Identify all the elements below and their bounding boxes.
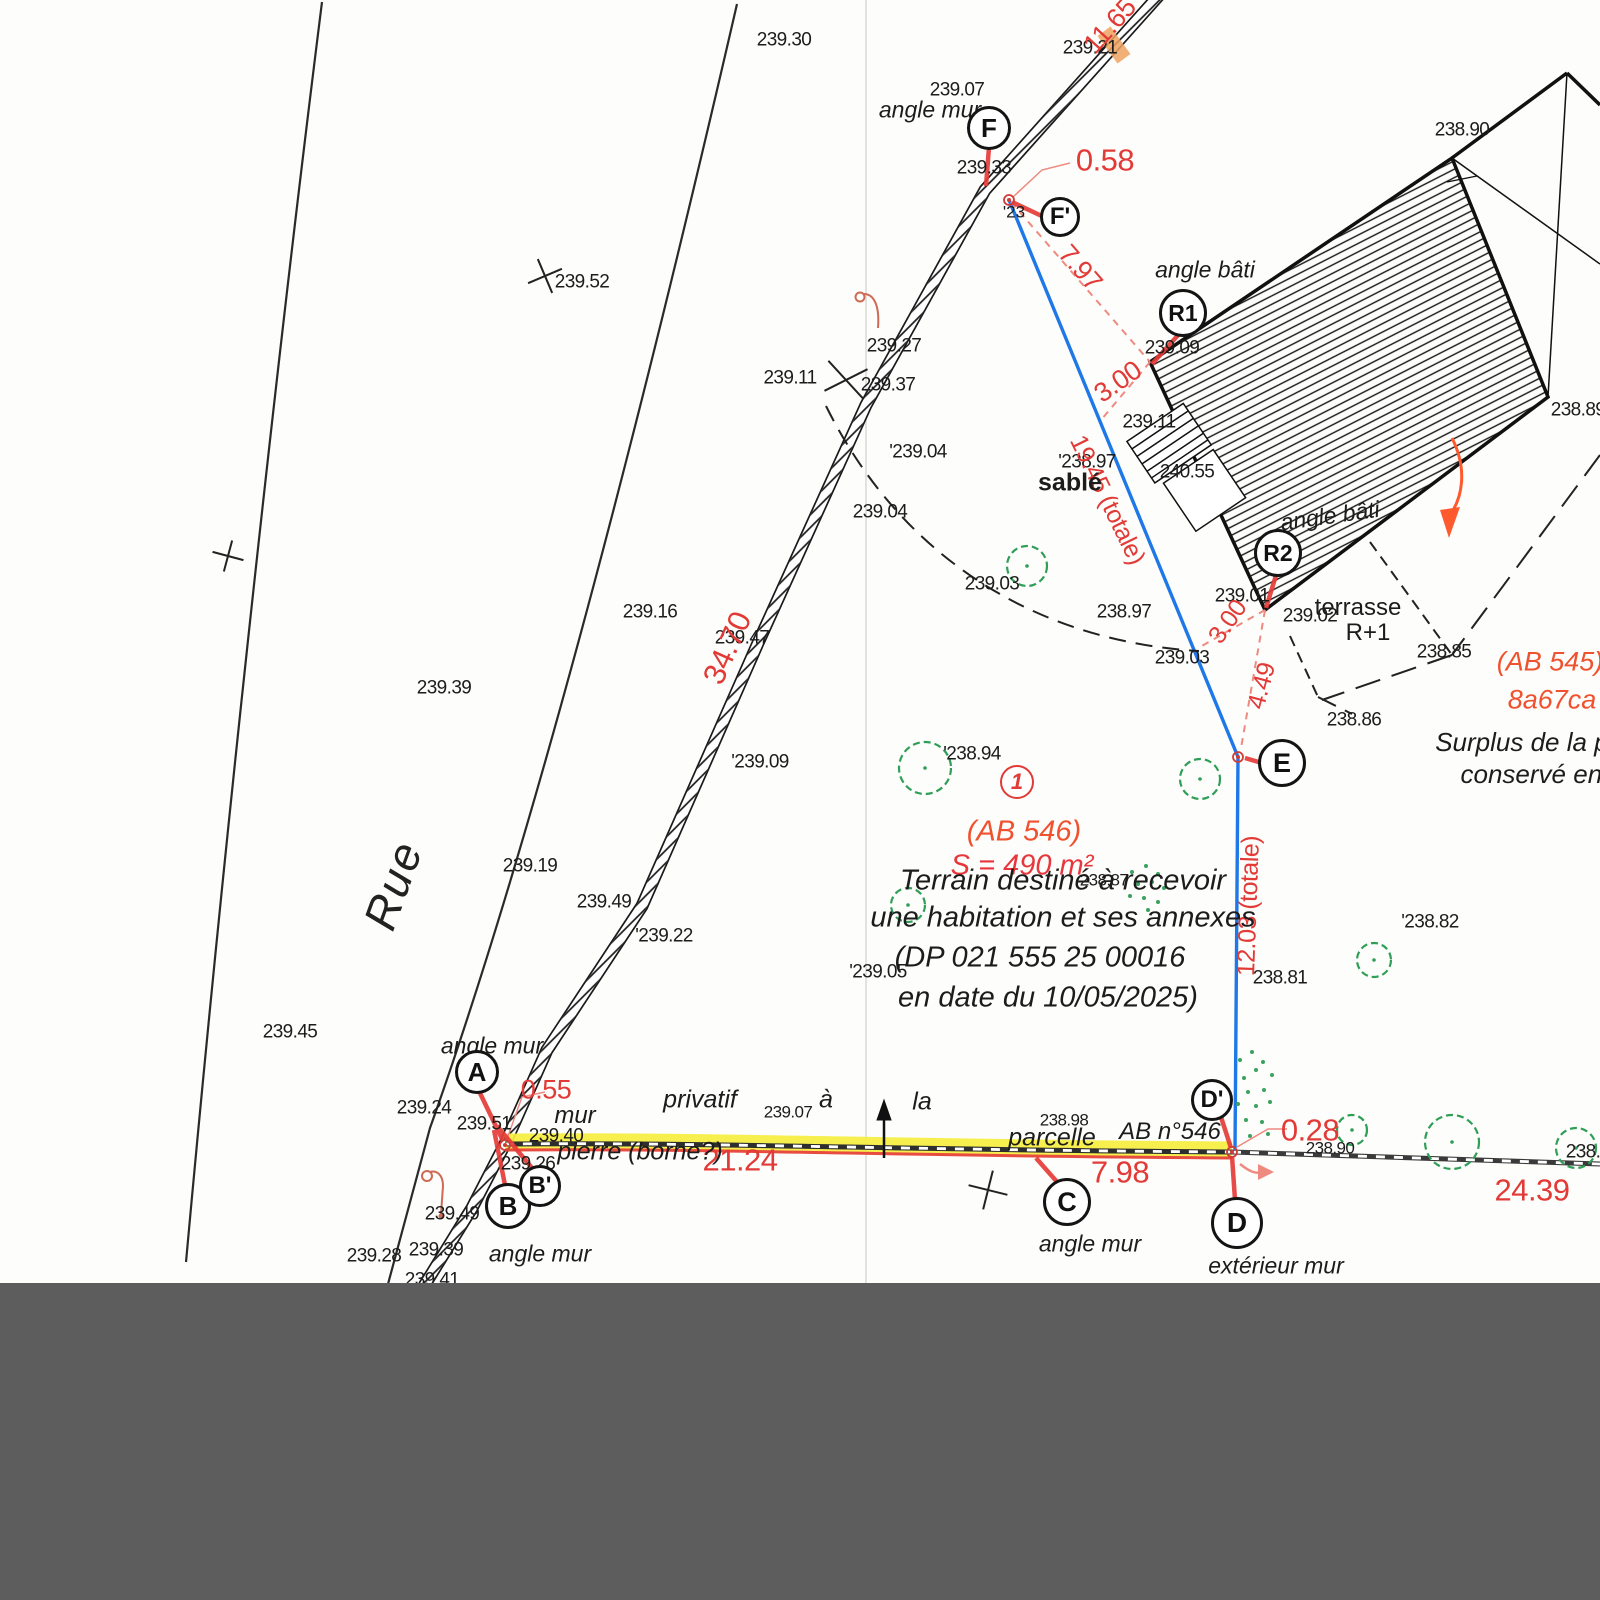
parcel-surface-ab545: 8a67ca — [1508, 687, 1597, 714]
elevation-label: 239.49 — [425, 1205, 480, 1224]
terrain-note-line1: Terrain destiné à recevoir — [900, 867, 1226, 896]
survey-point-D-prime: D' — [1191, 1079, 1233, 1121]
elevation-label: 238.8 — [1566, 1143, 1600, 1162]
cadastral-plan: Rue 239.30 239.21 239.07 239.33 239.52 2… — [0, 0, 1600, 1283]
elevation-label: 239.37 — [861, 376, 916, 395]
elevation-label: 238.97 — [1097, 603, 1152, 622]
elevation-label: 239.33 — [957, 159, 1012, 178]
elevation-label: 239.09 — [1145, 339, 1200, 358]
survey-point-E: E — [1258, 739, 1306, 787]
zone-number-1: 1 — [1000, 765, 1034, 799]
building-hatched — [1150, 73, 1600, 610]
survey-point-B-prime: B' — [519, 1165, 561, 1207]
elevation-label: 239.03 — [965, 575, 1020, 594]
elevation-label: '238.94 — [943, 745, 1001, 764]
elevation-label: 239.49 — [577, 893, 632, 912]
feature-label-terrasse: terrasse — [1315, 596, 1402, 620]
survey-point-F-prime: F' — [1040, 197, 1080, 237]
elevation-label: 239.39 — [417, 679, 472, 698]
elevation-label: 239.03 — [1155, 649, 1210, 668]
flow-arrow-icon — [1240, 1164, 1274, 1180]
elevation-label: 239.04 — [853, 503, 908, 522]
elevation-label: 239.39 — [409, 1241, 464, 1260]
elevation-label: 238.86 — [1327, 711, 1382, 730]
elevation-label: 239.28 — [347, 1247, 402, 1266]
feature-label-niveau: R+1 — [1346, 621, 1391, 645]
feature-label-parcelle-ref: AB n°546 — [1119, 1120, 1221, 1144]
elevation-label: 239.19 — [503, 857, 558, 876]
elevation-label: 238.81 — [1253, 969, 1308, 988]
measure-label: 24.39 — [1494, 1175, 1569, 1206]
measure-label: 7.98 — [1091, 1157, 1149, 1188]
survey-point-R1: R1 — [1159, 289, 1207, 337]
survey-point-F: F — [967, 106, 1011, 150]
elevation-label: 239.45 — [263, 1023, 318, 1042]
elevation-label: 239.24 — [397, 1099, 452, 1118]
agency-banner: AP IMMOBILIER TRANSACTION - LOCATION - G… — [0, 1283, 1600, 1600]
feature-label-sable: sablé — [1038, 471, 1102, 496]
terrain-note-line4: en date du 10/05/2025) — [898, 984, 1198, 1013]
survey-point-D: D — [1211, 1197, 1263, 1249]
feature-label-exterieur-mur: extérieur mur — [1208, 1255, 1343, 1278]
measure-label: 0.28 — [1281, 1115, 1339, 1146]
surplus-note-line2: conservé en l'état — [1461, 761, 1600, 787]
elevation-label: 238.90 — [1435, 121, 1490, 140]
measure-label: 0.58 — [1076, 145, 1134, 176]
feature-label-angle-bati: angle bâti — [1155, 259, 1255, 282]
elevation-label: 240.55 — [1160, 463, 1215, 482]
feature-label-parcelle: parcelle — [1008, 1126, 1096, 1151]
road-lines — [186, 2, 737, 1283]
parcel-ref-ab545: (AB 545) — [1497, 649, 1600, 676]
terrain-note-line3: (DP 021 555 25 00016 — [895, 944, 1186, 973]
elevation-label: 239.07 — [764, 1104, 812, 1121]
point-leaders — [479, 147, 1277, 1200]
elevation-label: 239.30 — [757, 31, 812, 50]
elevation-label: 239.11 — [763, 369, 816, 388]
feature-label-la: la — [912, 1090, 931, 1115]
feature-label-angle-mur: angle mur — [879, 99, 981, 122]
terrain-note-line2: une habitation et ses annexes — [870, 904, 1255, 933]
feature-label-angle-mur: angle mur — [1039, 1233, 1141, 1256]
feature-label-angle-mur: angle mur — [489, 1243, 591, 1266]
elevation-label: 239.11 — [1122, 413, 1175, 432]
elevation-label: 238.89 — [1551, 401, 1600, 420]
elevation-label: 238.85 — [1417, 643, 1472, 662]
feature-label-pierre: pierre (borne?) — [557, 1140, 722, 1165]
feature-label-angle-mur: angle mur — [441, 1035, 543, 1058]
parcel-ref-ab546: (AB 546) — [967, 818, 1081, 847]
survey-point-R2: R2 — [1254, 529, 1302, 577]
survey-point-A: A — [455, 1050, 499, 1094]
survey-point-C: C — [1043, 1178, 1091, 1226]
measure-label: 0.55 — [521, 1077, 572, 1104]
elevation-label: '238.82 — [1401, 913, 1459, 932]
feature-label-privatif: privatif — [663, 1088, 737, 1113]
cross-marks — [208, 259, 1012, 1214]
elevation-label: '239.04 — [889, 443, 947, 462]
survey-plan-page: Rue 239.30 239.21 239.07 239.33 239.52 2… — [0, 0, 1600, 1600]
elevation-label: 239.51 — [457, 1115, 512, 1134]
feature-label-mur: mur — [554, 1104, 595, 1128]
wall-line-east — [1232, 1152, 1600, 1164]
surplus-note-line1: Surplus de la propriété — [1435, 729, 1600, 755]
elevation-label: 239.27 — [867, 337, 922, 356]
feature-label-a: à — [819, 1088, 833, 1113]
elevation-label: 239.52 — [555, 273, 610, 292]
elevation-label: '239.22 — [635, 927, 693, 946]
fragment-label: '23 — [1003, 204, 1025, 221]
elevation-label: 239.16 — [623, 603, 678, 622]
elevation-label: '239.09 — [731, 753, 789, 772]
